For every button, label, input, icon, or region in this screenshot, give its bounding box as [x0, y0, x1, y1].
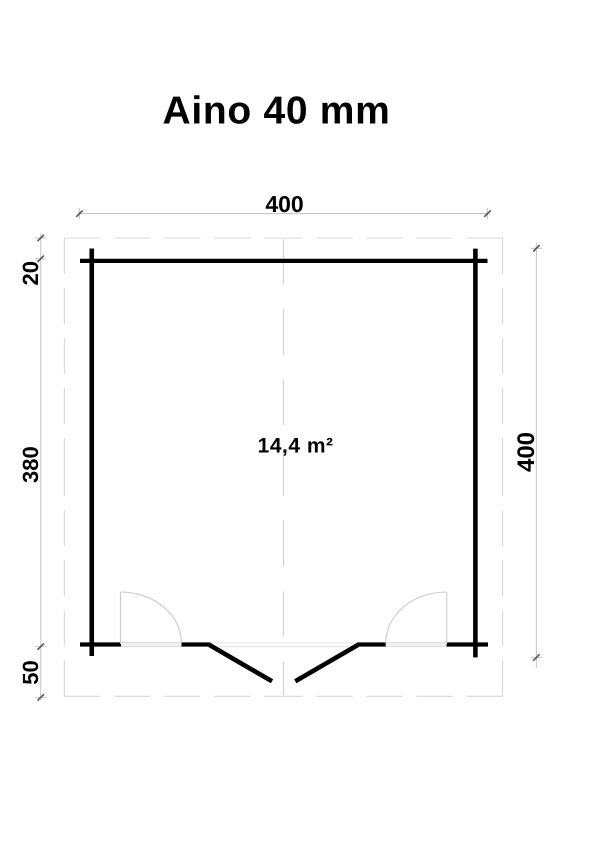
svg-text:20: 20	[18, 261, 43, 285]
svg-text:400: 400	[265, 191, 303, 217]
svg-text:14,4 m²: 14,4 m²	[258, 434, 334, 457]
svg-text:Aino 40 mm: Aino 40 mm	[162, 90, 390, 133]
svg-text:380: 380	[18, 446, 43, 483]
svg-text:400: 400	[513, 432, 540, 472]
svg-text:50: 50	[18, 660, 43, 684]
